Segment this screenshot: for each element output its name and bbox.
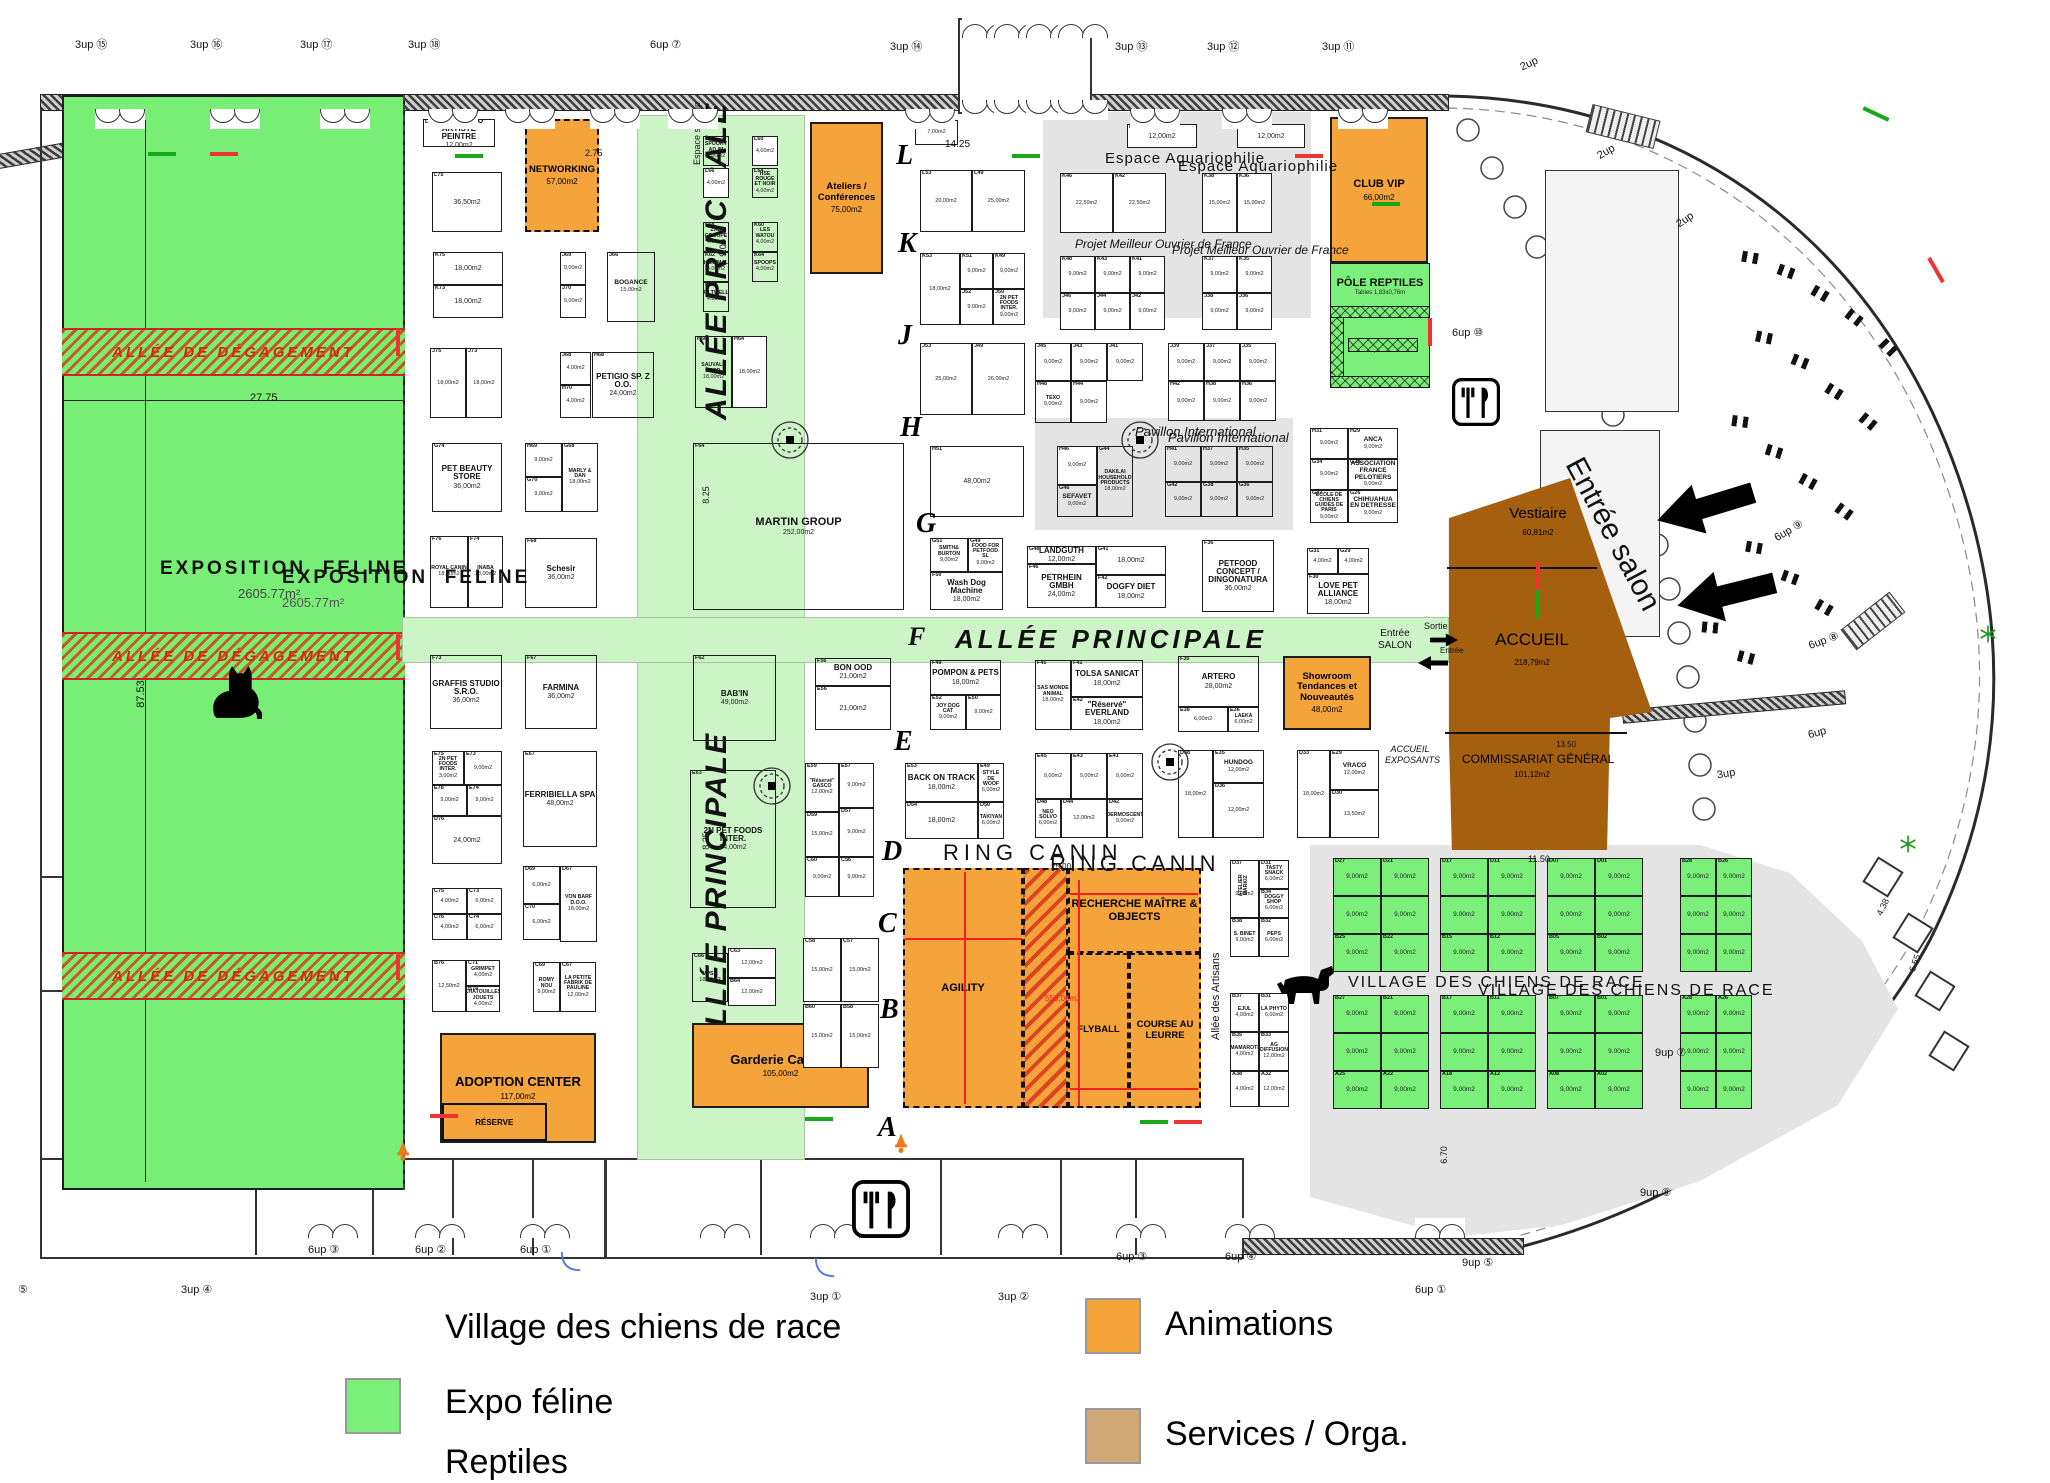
booth-area: 9,00m2 — [847, 830, 865, 836]
booth-area: 15,00m2 — [849, 968, 870, 974]
booth-c73: 6,00m2C73 — [467, 888, 502, 914]
booth-code: E41 — [1109, 754, 1119, 760]
booth-area: 9,00m2 — [1235, 938, 1253, 944]
booth-area: 9,00m2 — [1394, 1049, 1416, 1056]
animation-label: FLYBALL — [1077, 1025, 1119, 1035]
booth-name: TASTY SNACK — [1260, 866, 1288, 877]
booth-name: ROMY NOU — [534, 978, 559, 989]
booth-code: B38 — [1232, 919, 1242, 925]
booth-area: 9,00m2 — [1608, 950, 1630, 957]
booth-j39: 9,00m2J39 — [1168, 343, 1204, 381]
booth-area: 4,00m2 — [1235, 1087, 1253, 1093]
booth-code: J45 — [1037, 344, 1046, 350]
booth-area: 9,00m2 — [1000, 269, 1018, 275]
map-label-9-00: 9.00 — [718, 239, 728, 257]
booth-area: 9,00m2 — [1394, 912, 1416, 919]
booth-e56: 21,00m2E56 — [815, 686, 891, 730]
booth-code: F30 — [1309, 575, 1318, 581]
booth-code: B33 — [1261, 1033, 1271, 1039]
bottom-center-rooms — [605, 1158, 1244, 1259]
fountain-icon — [1120, 420, 1160, 460]
booth-code: D69 — [525, 867, 535, 873]
village-cell: 9,00m2B22 — [1381, 934, 1429, 972]
booth-name: Wash Dog Machine — [931, 579, 1002, 595]
booth-area: 9,00m2 — [1080, 400, 1098, 406]
legend-label-village: Village des chiens de race — [445, 1308, 841, 1347]
booth-code: H42 — [1170, 382, 1180, 388]
village-cell: 9,00m2 — [1595, 1033, 1643, 1071]
booth-code: B64 — [730, 979, 740, 985]
door-swing — [1222, 109, 1272, 129]
village-cell: 9,00m2D21 — [1381, 858, 1429, 896]
booth-code: J37 — [1206, 344, 1215, 350]
allee-de-degagement-label: ALLÉE DE DÉGAGEMENT — [112, 344, 355, 361]
booth-code: L60 — [754, 137, 763, 143]
booth-area: 12,00m2 — [1228, 768, 1249, 774]
booth-area: 9,00m2 — [967, 269, 985, 275]
booth-area: 9,00m2 — [1346, 874, 1368, 881]
booth-k75: 18,00m2K75 — [433, 252, 503, 285]
booth-area: 9,00m2 — [1608, 1049, 1630, 1056]
allee-de-degagement-band: ALLÉE DE DÉGAGEMENT — [62, 328, 405, 376]
booth-area: 9,00m2 — [1560, 1011, 1582, 1018]
booth-e74: 9,00m2E74 — [467, 785, 502, 816]
booth-area: 6,00m2 — [532, 920, 550, 926]
safety-mark — [396, 952, 400, 980]
booth-j68: 4,00m2J68 — [560, 352, 591, 385]
booth-area: 4,00m2 — [707, 297, 725, 303]
animation-area: 105,00m2 — [763, 1069, 799, 1078]
pole-reptiles-label: PÔLE REPTILES — [1337, 278, 1424, 289]
booth-code: F49 — [932, 661, 941, 667]
dog-icon — [1276, 958, 1336, 1018]
room-wall — [1135, 1158, 1137, 1255]
safety-mark — [1295, 154, 1323, 158]
booth-area: 9,00m2 — [1068, 463, 1086, 469]
booth-area: 15,00m2 — [849, 1034, 870, 1040]
door-label-3up: 3up ⑪ — [1322, 38, 1354, 54]
room-wall — [532, 1158, 534, 1255]
booth-area: 36,00m2 — [453, 483, 480, 490]
booth-j42: 9,00m2J42 — [1130, 293, 1165, 330]
agility-hatched-strip — [1023, 868, 1068, 1108]
booth-k46: 22,50m2K46 — [1060, 173, 1113, 233]
safety-mark — [455, 154, 483, 158]
booth-code: F42 — [1098, 576, 1107, 582]
map-label-espace-aquariophilie: Espace Aquariophilie — [1178, 158, 1338, 175]
booth-area: 9,00m2 — [1346, 912, 1368, 919]
booth-k37: 9,00m2K37 — [1202, 256, 1237, 293]
booth-area: 4,00m2 — [1313, 559, 1331, 565]
booth-name: GRAFFIS STUDIO S.R.O. — [431, 680, 501, 696]
booth-code: J39 — [1170, 344, 1179, 350]
village-cell: 9,00m2A02 — [1595, 1071, 1643, 1109]
booth-graffis-studio-s-r-o: GRAFFIS STUDIO S.R.O.36,00m2F73 — [430, 655, 502, 729]
door-label-6up: 6up ⑩ — [1452, 326, 1483, 339]
booth-code: D33 — [1299, 751, 1309, 757]
booth-area: 9,00m2 — [1068, 502, 1086, 508]
safety-mark — [1428, 318, 1432, 346]
village-cell: 9,00m2A22 — [1381, 1071, 1429, 1109]
booth-area: 9,00m2 — [1116, 774, 1134, 780]
booth-code: L75 — [434, 173, 443, 179]
booth-code: H68 — [594, 353, 604, 359]
safety-mark — [1536, 590, 1540, 618]
door-swing — [428, 109, 478, 129]
booth-area: 9,00m2 — [1213, 360, 1231, 366]
animation-label: NETWORKING — [529, 165, 595, 175]
booth-area: 9,00m2 — [564, 299, 582, 305]
booth-code: A18 — [1442, 1072, 1452, 1078]
animation-recherche-ma-tre-objects: RECHERCHE MAÎTRE & OBJECTS — [1068, 868, 1201, 953]
door-swing — [1225, 1218, 1275, 1238]
village-cell: 9,00m2 — [1716, 934, 1752, 972]
restaurant-icon — [852, 1180, 910, 1238]
pole-reptiles-tables: Tables 1,83x0,76m — [1355, 290, 1405, 296]
booth-area: 4,00m2 — [756, 240, 774, 246]
door-swing — [905, 109, 955, 129]
booth-b58: 15,00m2B58 — [841, 1004, 879, 1068]
booth-code: J52 — [962, 290, 971, 296]
booth-love-pet-alliance: LOVE PET ALLIANCE18,00m2F30 — [1307, 574, 1369, 614]
booth-e50: 9,00m2E50 — [966, 695, 1001, 730]
booth-name: SAUVALE PROD. — [696, 363, 731, 374]
booth-area: 9,00m2 — [1687, 1049, 1709, 1056]
map-label-2605-77m: 2605.77m² — [282, 595, 344, 610]
booth-area: 18,00m2 — [952, 679, 979, 686]
red-measure-line — [1070, 893, 1198, 895]
booth-ferribiella-spa: FERRIBIELLA SPA48,00m2E67 — [523, 751, 597, 847]
booth-name: SPOOKY AD IM — [704, 142, 728, 153]
booth-code: F45 — [1037, 661, 1046, 667]
booth-area: 9,00m2 — [974, 710, 992, 716]
booth-code: C70 — [525, 905, 535, 911]
booth-name: PETFOOD CONCEPT / DINGONATURA — [1203, 560, 1273, 584]
safety-cone-icon — [890, 1132, 912, 1154]
village-cell: 9,00m2B21 — [1381, 995, 1429, 1033]
service-area: 60,81m2 — [1522, 528, 1553, 537]
booth-area: 12,00m2 — [1257, 133, 1284, 140]
booth-area: 6,00m2 — [982, 821, 1000, 827]
booth-area: 25,00m2 — [935, 377, 956, 383]
booth-code: E74 — [469, 786, 479, 792]
booth-j75: 18,00m2J75 — [430, 348, 466, 418]
row-letter-k: K — [898, 228, 917, 260]
booth-name: ZAB GROUPE — [704, 228, 728, 239]
village-cell: 9,00m2 — [1333, 1033, 1381, 1071]
booth-code: H29 — [1350, 429, 1360, 435]
booth-area: 9,00m2 — [1453, 1049, 1475, 1056]
village-cell: 9,00m2 — [1488, 1033, 1536, 1071]
door-label-3up: 3up ⑮ — [75, 36, 107, 52]
booth-name: FOOD FOR PETFOOD SL — [969, 544, 1002, 560]
booth-code: F64 — [695, 444, 704, 450]
booth-code: C57 — [843, 939, 853, 945]
entree-arrow-icon — [1418, 648, 1448, 678]
booth-area: 21,00m2 — [839, 673, 866, 680]
village-cell: 9,00m2 — [1547, 896, 1595, 934]
booth-area: 9,00m2 — [1501, 912, 1523, 919]
booth-area: 9,00m2 — [1210, 497, 1228, 503]
village-cell: 9,00m2 — [1547, 1033, 1595, 1071]
booth-code: K75 — [435, 253, 445, 259]
booth-area: 9,00m2 — [847, 875, 865, 881]
booth-l75: 36,50m2L75 — [432, 172, 502, 232]
booth-spoops: SPOOPS4,00m2K64 — [752, 252, 778, 282]
booth-code: J50 — [995, 290, 1004, 296]
booth-spooky-ad-im: SPOOKY AD IM4,00m2L62 — [703, 136, 729, 166]
booth-name: LOVE PET ALLIANCE — [1308, 582, 1368, 598]
booth-h46: 9,00m2H46 — [1057, 446, 1097, 485]
village-cell: 9,00m2 — [1680, 896, 1716, 934]
adoption-reserve: RÉSERVE — [442, 1103, 547, 1141]
booth-name: BON OOD — [834, 664, 872, 672]
village-cell: 9,00m2B25 — [1333, 934, 1381, 972]
booth-c76: 4,00m2C76 — [432, 914, 467, 940]
booth-area: 12,00m2 — [567, 993, 588, 999]
booth-area: 18,00m2 — [1324, 599, 1351, 606]
booth-code: E53 — [907, 764, 917, 770]
booth-area: 15,00m2 — [811, 1034, 832, 1040]
booth-area: 12,00m2 — [741, 990, 762, 996]
restaurant-table-icon — [1702, 621, 1719, 633]
booth-name: HUNDOG — [1224, 760, 1253, 767]
booth-joy-dog-cat: JOY DOG CAT9,00m2E52 — [930, 695, 966, 730]
booth-area: 9,00m2 — [1177, 360, 1195, 366]
booth-area: 9,00m2 — [1723, 1087, 1745, 1094]
booth-code: F50 — [932, 573, 941, 579]
booth-code: H35 — [1239, 447, 1249, 453]
booth-area: 4,00m2 — [474, 973, 492, 979]
booth-area: 9,00m2 — [1249, 399, 1267, 405]
booth-area: 4,00m2 — [1344, 559, 1362, 565]
booth-code: B76 — [434, 961, 444, 967]
booth-code: J44 — [1097, 294, 1106, 300]
booth-e41: 9,00m2E41 — [1107, 753, 1143, 799]
red-measure-line — [1070, 1088, 1198, 1090]
village-cell: 9,00m2 — [1381, 896, 1429, 934]
booth-l60: 4,00m2L60 — [752, 136, 778, 166]
row-letter-g: G — [916, 508, 936, 540]
booth-code: E35 — [1215, 751, 1225, 757]
booth-name: NEO SOLVO — [1036, 810, 1060, 821]
booth-k38: 15,00m2K38 — [1202, 173, 1237, 233]
booth-code: J49 — [974, 344, 983, 350]
booth-name: 2N PET FOODS INTER. — [994, 296, 1024, 312]
booth-mps-2: MPS 218,00m2C66 — [692, 953, 728, 1002]
booth-area: 9,00m2 — [1080, 774, 1098, 780]
booth-area: 15,00m2 — [620, 288, 641, 294]
map-label-27-75: 27.75 — [250, 392, 278, 404]
booth-h38: 9,00m2H38 — [1204, 381, 1240, 421]
booth-dogfy-diet: DOGFY DIET18,00m2F42 — [1096, 575, 1166, 608]
row-letter-l: L — [896, 140, 913, 172]
village-cell: 9,00m2B01 — [1595, 995, 1643, 1033]
booth-code: D27 — [1335, 859, 1345, 865]
booth-area: 12,00m2 — [1148, 133, 1175, 140]
booth-name: JOY DOG CAT — [931, 704, 965, 715]
booth-area: 21,00m2 — [839, 705, 866, 712]
booth-area: 18,00m2 — [569, 480, 590, 486]
booth-code: E56 — [817, 687, 827, 693]
booth-b64: 12,00m2B64 — [728, 978, 776, 1006]
booth-code: A12 — [1490, 1072, 1500, 1078]
booth-code: B15 — [1442, 935, 1452, 941]
map-label-14-25: 14.25 — [945, 139, 970, 150]
booth-code: H48 — [1037, 382, 1047, 388]
map-label-pavillon-international: Pavillon International — [1168, 430, 1289, 445]
booth-code: E43 — [1073, 754, 1083, 760]
village-cell: 9,00m2 — [1680, 1071, 1716, 1109]
booth-code: H36 — [1242, 382, 1252, 388]
booth-code: J75 — [432, 349, 441, 355]
booth-area: 18,00m2 — [1104, 487, 1125, 493]
booth-code: C74 — [469, 915, 479, 921]
door-swing — [505, 109, 555, 129]
booth-name: 2N PET FOODS INTER. — [433, 757, 463, 773]
animation-label: CLUB VIP — [1353, 178, 1404, 190]
booth-code: J68 — [562, 353, 571, 359]
door-label-3up: 3up ④ — [181, 1283, 212, 1296]
animation-label: ADOPTION CENTER — [455, 1075, 581, 1089]
booth-area: 6,00m2 — [532, 883, 550, 889]
booth-name: STYLE DE WOOF — [979, 771, 1003, 787]
booth-hundog: HUNDOG12,00m2E35 — [1213, 750, 1264, 783]
booth-texo: TEXO9,00m2H48 — [1035, 381, 1071, 423]
booth-area: 9,00m2 — [1138, 272, 1156, 278]
booth-filtwell: FILTWELL4,00m2K66 — [703, 282, 729, 312]
door-label-3up: 3up ⑱ — [408, 36, 440, 52]
map-label-projet-meilleur-ouvrier-de-france: Projet Meilleur Ouvrier de France — [1172, 243, 1349, 257]
booth-name: BAB'IN — [721, 690, 748, 698]
animation-course-au-leurre: COURSE AU LEURRE — [1129, 953, 1201, 1108]
booth-marly-dan: MARLY & DAN18,00m2G68 — [562, 443, 598, 512]
booth-area: 9,00m2 — [1501, 950, 1523, 957]
booth-code: K49 — [995, 254, 1005, 260]
booth-area: 18,00m2 — [929, 287, 950, 293]
plant-icon — [1978, 624, 1998, 644]
booth-code: F41 — [1073, 661, 1082, 667]
floor-plan: Village des chiens de race Expo féline R… — [0, 0, 2050, 1483]
map-label-8-25: 8.25 — [701, 832, 711, 850]
legend-label-services: Services / Orga. — [1165, 1415, 1409, 1454]
booth-2n-pet-foods-inter: 2N PET FOODS INTER.3,00m2E75 — [432, 751, 464, 785]
booth-code: H38 — [1206, 382, 1216, 388]
safety-mark — [1536, 562, 1540, 590]
door-label-3up: 3up ⑯ — [190, 36, 222, 52]
booth-petrhein-gmbh: PETRHEIN GMBH24,00m2F46 — [1027, 564, 1096, 608]
door-arc-blue-icon — [814, 1256, 836, 1278]
animation-label: RECHERCHE MAÎTRE & OBJECTS — [1070, 898, 1199, 922]
village-cell: 9,00m2 — [1333, 896, 1381, 934]
legend-label-animations: Animations — [1165, 1305, 1333, 1344]
booth-area: 9,00m2 — [1560, 1087, 1582, 1094]
row-letter-h: H — [900, 412, 922, 444]
booth-code: E57 — [841, 764, 851, 770]
booth-d57: 9,00m2D57 — [839, 808, 874, 857]
booth-code: K66 — [705, 283, 715, 289]
booth-h69: 9,00m2H69 — [525, 443, 562, 477]
room-wall — [760, 1158, 762, 1255]
room-wall — [1060, 1158, 1062, 1255]
booth-code: B17 — [1442, 996, 1452, 1002]
booth-area: 15,00m2 — [1244, 201, 1265, 207]
booth-g31: 4,00m2G31 — [1307, 548, 1338, 574]
animation-label: Ateliers / Conférences — [812, 182, 881, 203]
booth-code: D76 — [434, 817, 444, 823]
village-cell: 9,00m2 — [1716, 1033, 1752, 1071]
booth-j37: 9,00m2J37 — [1204, 343, 1240, 381]
booth-k43: 9,00m2K43 — [1095, 256, 1130, 293]
booth-area: 9,00m2 — [1103, 272, 1121, 278]
booth-code: E52 — [932, 696, 942, 702]
booth-code: H46 — [1059, 447, 1069, 453]
booth-code: F62 — [695, 656, 704, 662]
booth-e43: 9,00m2E43 — [1071, 753, 1107, 799]
booth-area: 48,00m2 — [546, 800, 573, 807]
animation-area: 117,00m2 — [501, 1092, 536, 1101]
booth-d36: 12,00m2D36 — [1213, 783, 1264, 838]
booth-area: 9,00m2 — [534, 458, 552, 464]
village-cell: 9,00m2A08 — [1547, 1071, 1595, 1109]
accueil-exposants-label: ACCUEILEXPOSANTS — [1385, 744, 1435, 766]
booth-area: 9,00m2 — [1346, 1011, 1368, 1018]
booth-area: 9,00m2 — [1453, 1087, 1475, 1094]
booth-name: "Réservé" GASCO — [806, 779, 838, 790]
animation-area: 48,00m2 — [1311, 705, 1342, 714]
booth-area: 4,00m2 — [756, 189, 774, 195]
booth-chihuahua-en-detresse: CHIHUAHUA EN DETRESSE9,00m2G26 — [1348, 490, 1398, 523]
booth-name: LANDGUTH — [1039, 547, 1084, 555]
booth-g29: 4,00m2G29 — [1338, 548, 1369, 574]
booth-name: MARTIN GROUP — [755, 517, 841, 528]
row-letter-d: D — [882, 836, 902, 868]
booth-code: C75 — [434, 889, 444, 895]
booth-code: D37 — [1232, 861, 1242, 867]
booth-area: 9,00m2 — [1346, 1087, 1368, 1094]
red-measure-line — [964, 872, 966, 1104]
left-wall — [40, 108, 42, 1238]
booth-sefavet: SEFAVET9,00m2G46 — [1057, 485, 1097, 517]
booth-code: F46 — [1029, 565, 1038, 571]
reptile-table-row — [1348, 338, 1418, 352]
booth-h41: 9,00m2H41 — [1165, 446, 1201, 482]
booth-name: FERRIBIELLA SPA — [525, 791, 596, 799]
booth-area: 9,00m2 — [1501, 874, 1523, 881]
door-swing — [1058, 18, 1108, 38]
booth-name: Schesir — [547, 565, 576, 573]
booth-landguth: LANDGUTH12,00m2G48 — [1027, 546, 1096, 564]
map-label-25-00: 25.00 — [1051, 862, 1071, 871]
village-cell: 9,00m2D07 — [1547, 858, 1595, 896]
booth-code: D57 — [841, 809, 851, 815]
booth-k48: 9,00m2K48 — [1060, 256, 1095, 293]
booth-name: ARTERO — [1202, 673, 1236, 681]
booth-area: 6,00m2 — [1265, 938, 1283, 944]
booth-code: B58 — [843, 1005, 853, 1011]
village-cell: 9,00m2B28 — [1680, 858, 1716, 896]
booth-name: LES WATOU — [753, 228, 777, 239]
booth-area: 9,00m2 — [1210, 462, 1228, 468]
booth-area: 4,00m2 — [566, 399, 584, 405]
door-label-3up: 3up ⑰ — [300, 36, 332, 52]
booth-area: 18,00m2 — [1303, 792, 1324, 798]
booth-area: 9,00m2 — [1249, 360, 1267, 366]
booth-code: G68 — [564, 444, 574, 450]
village-cell: 9,00m2 — [1680, 934, 1716, 972]
village-cell: 9,00m2D17 — [1440, 858, 1488, 896]
village-cell: 9,00m2 — [1440, 896, 1488, 934]
